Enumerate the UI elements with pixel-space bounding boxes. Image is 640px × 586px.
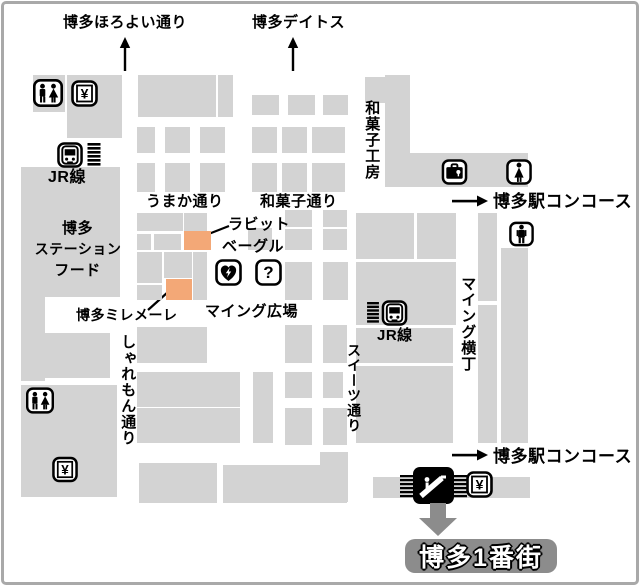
building-block <box>285 372 312 398</box>
label-rabbit-bagel-1: ラビット <box>228 216 290 233</box>
label-station-food-3: フード <box>40 262 115 279</box>
train-icon <box>56 142 84 168</box>
building-block <box>137 408 240 443</box>
question-icon: ? <box>255 259 282 286</box>
yen-icon: ¥ <box>52 456 78 483</box>
destination-badge: 博多1番街 <box>405 539 557 573</box>
label-sharemon-dori: しゃれもん通り <box>119 334 136 446</box>
restroom-icon <box>26 387 54 414</box>
hakata-station-map: 博多1番街 博多ほろよい通り博多デイトス和菓子工房JR線うまか通り和菓子通り博多… <box>0 0 640 586</box>
building-block <box>137 252 162 283</box>
building-block <box>137 127 155 153</box>
train-icon <box>381 300 408 326</box>
building-block <box>323 210 347 227</box>
building-block <box>137 372 240 407</box>
destination-badge-label: 博多1番街 <box>419 538 543 574</box>
up-arrow-icon <box>117 37 133 71</box>
down-arrow-icon <box>418 503 458 537</box>
label-maing-yokocho: マイング横丁 <box>459 276 476 372</box>
label-umaka-dori: うまか通り <box>146 193 224 210</box>
right-arrow-icon <box>452 193 488 209</box>
building-block <box>21 297 45 381</box>
label-sweets-dori: スイーツ通り <box>346 343 362 433</box>
label-station-food-1: 博多 <box>40 220 115 237</box>
highlight-hakata-millemele <box>166 279 192 300</box>
building-block <box>138 75 216 117</box>
building-block <box>200 127 225 153</box>
building-block <box>165 163 190 192</box>
svg-text:¥: ¥ <box>476 477 484 493</box>
building-block <box>137 234 151 250</box>
escalator-icon <box>400 467 467 505</box>
building-block <box>164 252 192 278</box>
building-block <box>223 465 347 503</box>
label-station-food-2: ステーション <box>33 241 123 257</box>
label-horoyoi-dori: 博多ほろよい通り <box>63 14 187 31</box>
label-rabbit-bagel-2: ベーグル <box>222 238 284 255</box>
building-block <box>137 213 183 231</box>
building-block <box>323 262 348 300</box>
building-block <box>285 325 312 363</box>
building-block <box>252 95 279 115</box>
building-block <box>253 372 273 443</box>
label-deitos: 博多デイトス <box>252 14 345 31</box>
building-block <box>323 325 347 363</box>
building-block <box>312 163 345 192</box>
svg-text:¥: ¥ <box>61 462 69 477</box>
label-wagashi-dori: 和菓子通り <box>260 193 338 210</box>
building-block <box>137 285 162 300</box>
aed-icon <box>215 259 242 286</box>
building-block <box>501 248 528 443</box>
man-icon <box>509 221 534 247</box>
building-block <box>417 213 456 259</box>
building-block <box>356 366 453 443</box>
building-block <box>285 408 312 445</box>
label-concourse-top: 博多駅コンコース <box>493 192 632 212</box>
up-arrow-icon <box>285 37 301 71</box>
stairs-icon <box>87 143 101 166</box>
building-block <box>154 234 181 250</box>
building-block <box>137 163 155 192</box>
right-arrow-icon <box>452 447 488 463</box>
label-hakata-millemele: 博多ミレメーレ <box>76 307 178 323</box>
label-concourse-bottom: 博多駅コンコース <box>493 447 632 467</box>
building-block <box>137 327 207 363</box>
building-block <box>282 127 307 153</box>
label-wagashi-kobo: 和菓子工房 <box>363 100 380 180</box>
building-block <box>323 408 347 445</box>
building-block <box>323 229 347 250</box>
building-block <box>356 213 414 259</box>
building-block <box>282 163 307 192</box>
yen-icon: ¥ <box>71 80 98 107</box>
building-block <box>252 163 277 192</box>
building-block <box>478 213 497 301</box>
label-jr-line-left: JR線 <box>48 169 86 187</box>
stairs-icon <box>366 302 380 323</box>
building-block <box>478 305 497 443</box>
building-block <box>252 127 277 153</box>
building-block <box>44 333 110 378</box>
coin-locker-icon <box>441 159 468 185</box>
building-block <box>165 127 190 153</box>
building-block <box>323 372 343 398</box>
label-maing-hiroba: マイング広場 <box>205 303 298 320</box>
svg-text:¥: ¥ <box>81 86 89 102</box>
building-block <box>200 163 225 192</box>
building-block <box>184 213 207 231</box>
building-block <box>218 75 233 117</box>
woman-icon <box>506 159 532 185</box>
yen-icon: ¥ <box>466 471 493 498</box>
building-block <box>285 262 312 300</box>
building-block <box>323 95 348 115</box>
building-block <box>288 95 315 115</box>
svg-text:?: ? <box>263 263 273 282</box>
building-block <box>312 127 345 153</box>
building-block <box>193 252 207 300</box>
label-jr-line-right: JR線 <box>377 327 413 344</box>
highlight-rabbit-bagel <box>184 231 211 250</box>
building-block <box>139 463 217 503</box>
restroom-icon <box>33 79 63 107</box>
